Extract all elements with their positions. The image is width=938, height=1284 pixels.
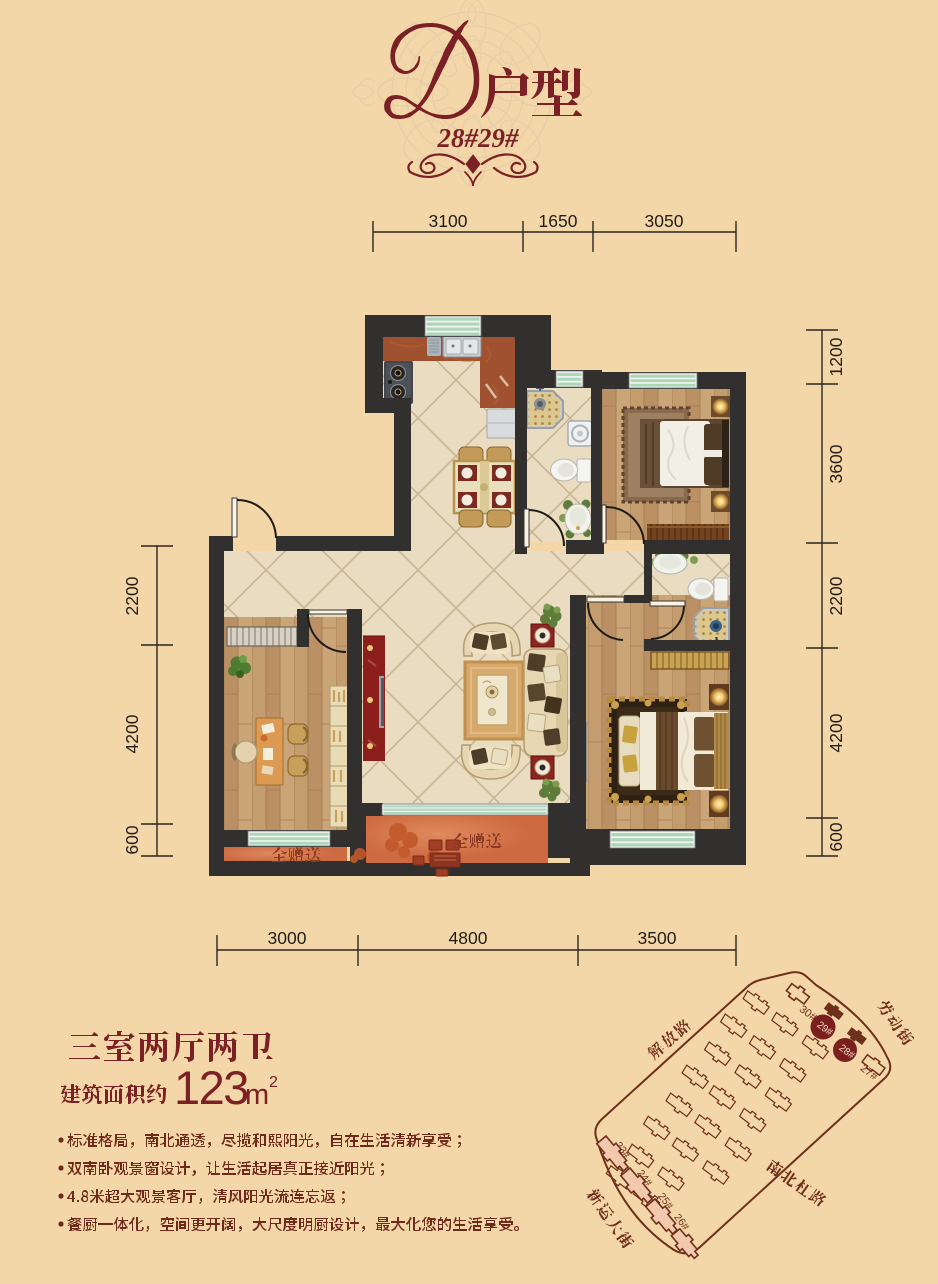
svg-text:4200: 4200: [122, 714, 142, 753]
svg-text:3000: 3000: [268, 928, 307, 948]
svg-text:3100: 3100: [429, 211, 468, 231]
svg-text:2: 2: [269, 1074, 278, 1091]
svg-text:3500: 3500: [638, 928, 677, 948]
svg-text:1200: 1200: [826, 337, 846, 376]
svg-text:3600: 3600: [826, 444, 846, 483]
svg-text:600: 600: [122, 825, 142, 854]
svg-text:2200: 2200: [826, 576, 846, 615]
svg-text:3050: 3050: [645, 211, 684, 231]
svg-text:4800: 4800: [449, 928, 488, 948]
svg-text:600: 600: [826, 822, 846, 851]
svg-text:123: 123: [174, 1061, 248, 1114]
svg-text:m: m: [245, 1079, 269, 1111]
svg-text:4200: 4200: [826, 713, 846, 752]
svg-text:1650: 1650: [539, 211, 578, 231]
svg-text:28#29#: 28#29#: [437, 123, 520, 153]
svg-text:2200: 2200: [122, 576, 142, 615]
